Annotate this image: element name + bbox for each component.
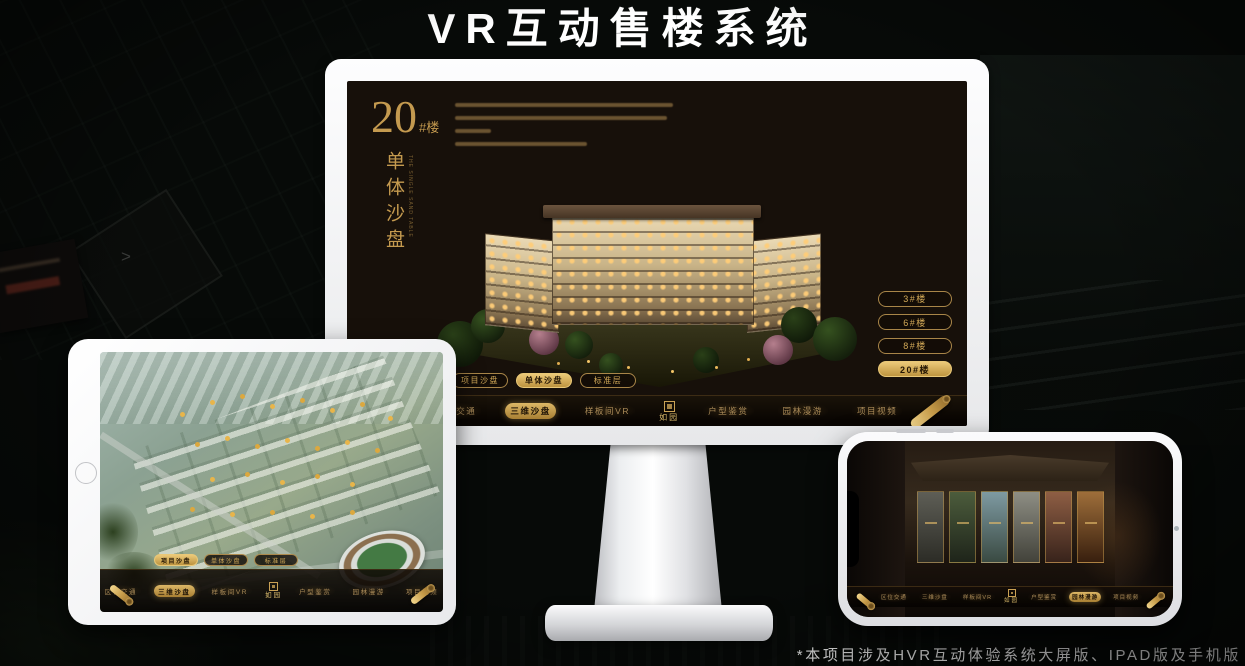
footnote-text: *本项目涉及HVR互动体验系统大屏版、IPAD版及手机版 (797, 644, 1241, 665)
gallery-panel[interactable] (1045, 491, 1072, 563)
subtab-project-sandtable[interactable]: 项目沙盘 (154, 554, 198, 566)
nav-item-model-room-vr[interactable]: 样板间VR (580, 403, 635, 419)
phone-volume-button (896, 429, 926, 433)
description-text-line (455, 142, 587, 146)
nav-item-project-video[interactable]: 项目视频 (1110, 592, 1142, 602)
block-headline: 20#楼 (371, 94, 439, 140)
gallery-panel[interactable] (917, 491, 944, 563)
background-streaks (955, 280, 1245, 410)
floor-button-8[interactable]: 8#楼 (878, 338, 952, 354)
block-number: 20 (371, 91, 417, 142)
description-paragraph (455, 103, 673, 155)
nav-item-3d-sandtable[interactable]: 三维沙盘 (154, 585, 194, 597)
phone-camera-dot (1174, 526, 1179, 531)
phone-notch (847, 491, 859, 567)
building-facade (552, 215, 754, 325)
page-title: VR互动售楼系统 (0, 0, 1245, 58)
project-logo: 如园 (265, 582, 282, 600)
logo-seal-icon (664, 401, 675, 412)
subtab-standard-floor[interactable]: 标准层 (254, 554, 298, 566)
description-text-line (455, 103, 673, 107)
block-number-suffix: #楼 (419, 120, 439, 135)
logo-text: 如园 (659, 414, 679, 422)
ground-lights (587, 360, 590, 363)
monitor-stand-base (545, 605, 773, 641)
gallery-panel[interactable] (949, 491, 976, 563)
nav-item-location-traffic[interactable]: 区位交通 (878, 592, 910, 602)
tree (693, 347, 719, 373)
building-render (437, 157, 867, 401)
tablet-home-button (75, 462, 97, 484)
block-vertical-title: 单体沙盘 (380, 151, 407, 255)
pavilion-roof (911, 455, 1109, 481)
tablet-screen: 项目沙盘 单体沙盘 标准层 区位交通 三维沙盘 样板间VR 如园 户型鉴赏 园林… (100, 352, 443, 612)
gallery-panel[interactable] (981, 491, 1008, 563)
logo-text: 如园 (265, 593, 282, 600)
project-logo: 如园 (659, 401, 679, 422)
description-text-line (455, 129, 491, 133)
description-text-line (455, 116, 667, 120)
floor-button-group: 3#楼 6#楼 8#楼 20#楼 (878, 289, 967, 383)
background-chevron: > (121, 247, 131, 267)
nav-item-unit-appreciation[interactable]: 户型鉴赏 (703, 403, 753, 419)
building-roof (543, 205, 761, 218)
monitor-stand-neck (594, 443, 722, 611)
project-logo: 如园 (1004, 589, 1019, 605)
nav-item-unit-appreciation[interactable]: 户型鉴赏 (1028, 592, 1060, 602)
nav-item-project-video[interactable]: 项目视频 (852, 403, 902, 419)
nav-item-model-room-vr[interactable]: 样板间VR (208, 585, 253, 597)
building-wing-left (485, 233, 559, 333)
phone-power-button (936, 429, 954, 433)
gallery-panel[interactable] (1077, 491, 1104, 563)
nav-item-garden-roam[interactable]: 园林漫游 (348, 585, 388, 597)
nav-item-garden-roam[interactable]: 园林漫游 (1069, 592, 1101, 602)
tablet-device: 项目沙盘 单体沙盘 标准层 区位交通 三维沙盘 样板间VR 如园 户型鉴赏 园林… (68, 339, 456, 625)
background-certificate (0, 239, 88, 333)
pink-tree (763, 335, 793, 365)
logo-text: 如园 (1004, 599, 1019, 605)
subtab-standard-floor[interactable]: 标准层 (580, 373, 636, 388)
floor-button-20[interactable]: 20#楼 (878, 361, 952, 377)
logo-seal-icon (269, 582, 278, 591)
floor-button-3[interactable]: 3#楼 (878, 291, 952, 307)
gallery-panels (917, 491, 1104, 563)
building-number-badges[interactable] (180, 412, 185, 417)
nav-item-3d-sandtable[interactable]: 三维沙盘 (505, 403, 555, 419)
tree (565, 331, 593, 359)
tablet-nav-bar: 区位交通 三维沙盘 样板间VR 如园 户型鉴赏 园林漫游 项目视频 (100, 569, 443, 612)
nav-item-unit-appreciation[interactable]: 户型鉴赏 (295, 585, 335, 597)
subtab-project-sandtable[interactable]: 项目沙盘 (452, 373, 508, 388)
poster-canvas: > VR互动售楼系统 20#楼 单体沙盘 THE SINGLE SAND TAB… (0, 0, 1245, 666)
phone-nav-bar: 区位交通 三维沙盘 样板间VR 如园 户型鉴赏 园林漫游 项目视频 (847, 586, 1173, 607)
tablet-subtab-group: 项目沙盘 单体沙盘 标准层 (154, 554, 298, 566)
block-vertical-subtitle: THE SINGLE SAND TABLE (407, 155, 413, 238)
phone-device: 区位交通 三维沙盘 样板间VR 如园 户型鉴赏 园林漫游 项目视频 (838, 432, 1182, 626)
subtab-single-sandtable[interactable]: 单体沙盘 (204, 554, 248, 566)
nav-item-garden-roam[interactable]: 园林漫游 (778, 403, 828, 419)
gallery-panel[interactable] (1013, 491, 1040, 563)
subtab-single-sandtable[interactable]: 单体沙盘 (516, 373, 572, 388)
subtab-group: 项目沙盘 单体沙盘 标准层 (452, 373, 636, 388)
nav-item-3d-sandtable[interactable]: 三维沙盘 (919, 592, 951, 602)
logo-seal-icon (1008, 589, 1016, 597)
phone-screen: 区位交通 三维沙盘 样板间VR 如园 户型鉴赏 园林漫游 项目视频 (847, 441, 1173, 617)
tree (813, 317, 857, 361)
floor-button-6[interactable]: 6#楼 (878, 314, 952, 330)
nav-item-model-room-vr[interactable]: 样板间VR (960, 592, 995, 602)
